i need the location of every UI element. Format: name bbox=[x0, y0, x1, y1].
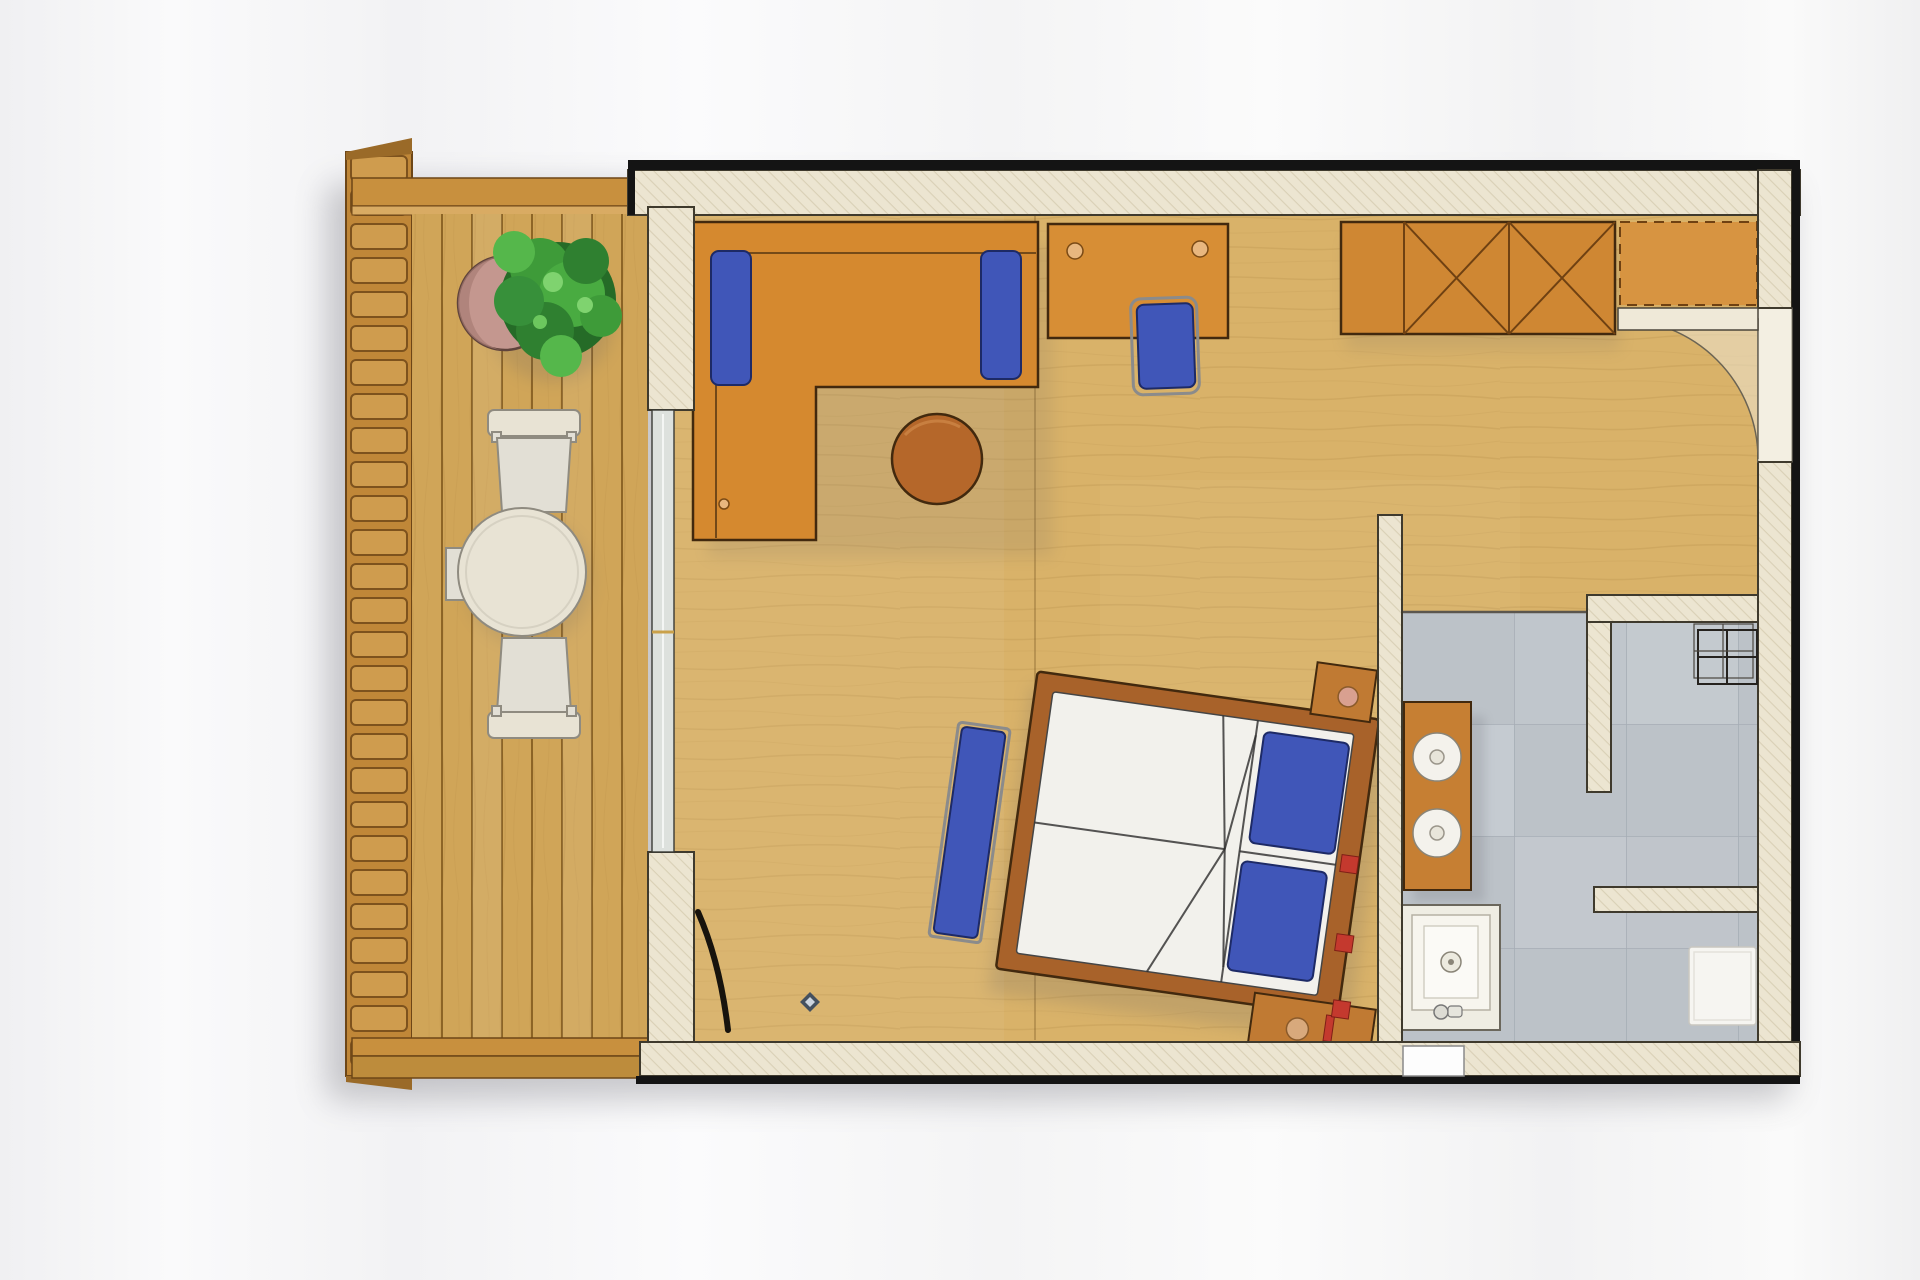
red-accent bbox=[1340, 855, 1359, 874]
balcony-bottom-frame bbox=[352, 1038, 648, 1056]
entry-partition-horizontal bbox=[1587, 595, 1758, 622]
door-jamb-strip bbox=[1758, 308, 1792, 462]
desk-knob bbox=[1067, 243, 1083, 259]
sofa-bolster-right bbox=[981, 251, 1021, 379]
desk-chair-seat bbox=[1137, 303, 1196, 389]
left-wall-pillar bbox=[648, 207, 694, 410]
desk-knob bbox=[1192, 241, 1208, 257]
balcony bbox=[346, 138, 648, 1090]
top-wall bbox=[628, 170, 1800, 215]
bottom-wall bbox=[640, 1042, 1800, 1076]
bottom-wall-window bbox=[1403, 1046, 1464, 1076]
balcony-bottom-frame-outer bbox=[352, 1056, 648, 1078]
shower-tray bbox=[1402, 905, 1500, 1030]
bistro-table bbox=[458, 508, 586, 636]
right-wall bbox=[1758, 170, 1792, 1076]
pillow-lower bbox=[1227, 861, 1327, 982]
pillow-upper bbox=[1249, 732, 1350, 855]
entry-partition-vertical bbox=[1587, 622, 1611, 792]
floor-plan-stage bbox=[0, 0, 1920, 1280]
vanity-counter bbox=[1404, 702, 1471, 890]
round-basin-2 bbox=[1413, 809, 1461, 857]
balcony-glass-door bbox=[652, 410, 674, 852]
sofa-button bbox=[719, 499, 729, 509]
bottom-wall-outline bbox=[636, 1076, 1800, 1084]
round-basin-1 bbox=[1413, 733, 1461, 781]
left-wall-stub bbox=[648, 852, 694, 1042]
shower-partition-stub bbox=[1594, 887, 1758, 912]
bathroom-wall bbox=[1378, 515, 1402, 1042]
balcony-top-rail bbox=[352, 206, 630, 215]
desk-chair bbox=[1130, 297, 1199, 395]
patio-chair-bottom bbox=[488, 638, 580, 738]
luggage-bench bbox=[1620, 222, 1757, 305]
red-accent bbox=[1331, 1000, 1350, 1019]
entrance-door-leaf bbox=[1618, 308, 1758, 330]
right-wall-outline bbox=[1792, 160, 1800, 1084]
red-accent bbox=[1335, 934, 1354, 953]
bath-mat bbox=[1689, 947, 1756, 1025]
sofa-bolster-left bbox=[711, 251, 751, 385]
louver-strip bbox=[346, 152, 412, 1076]
patio-chair-top bbox=[488, 410, 580, 512]
shower-drain-dot bbox=[1448, 959, 1454, 965]
top-wall-outline bbox=[628, 160, 1800, 170]
round-ottoman bbox=[892, 414, 982, 504]
balcony-top-frame bbox=[352, 178, 630, 206]
top-wall-left-cap bbox=[628, 160, 635, 215]
floor-plan-canvas bbox=[0, 0, 1920, 1280]
wardrobe bbox=[1341, 222, 1615, 334]
